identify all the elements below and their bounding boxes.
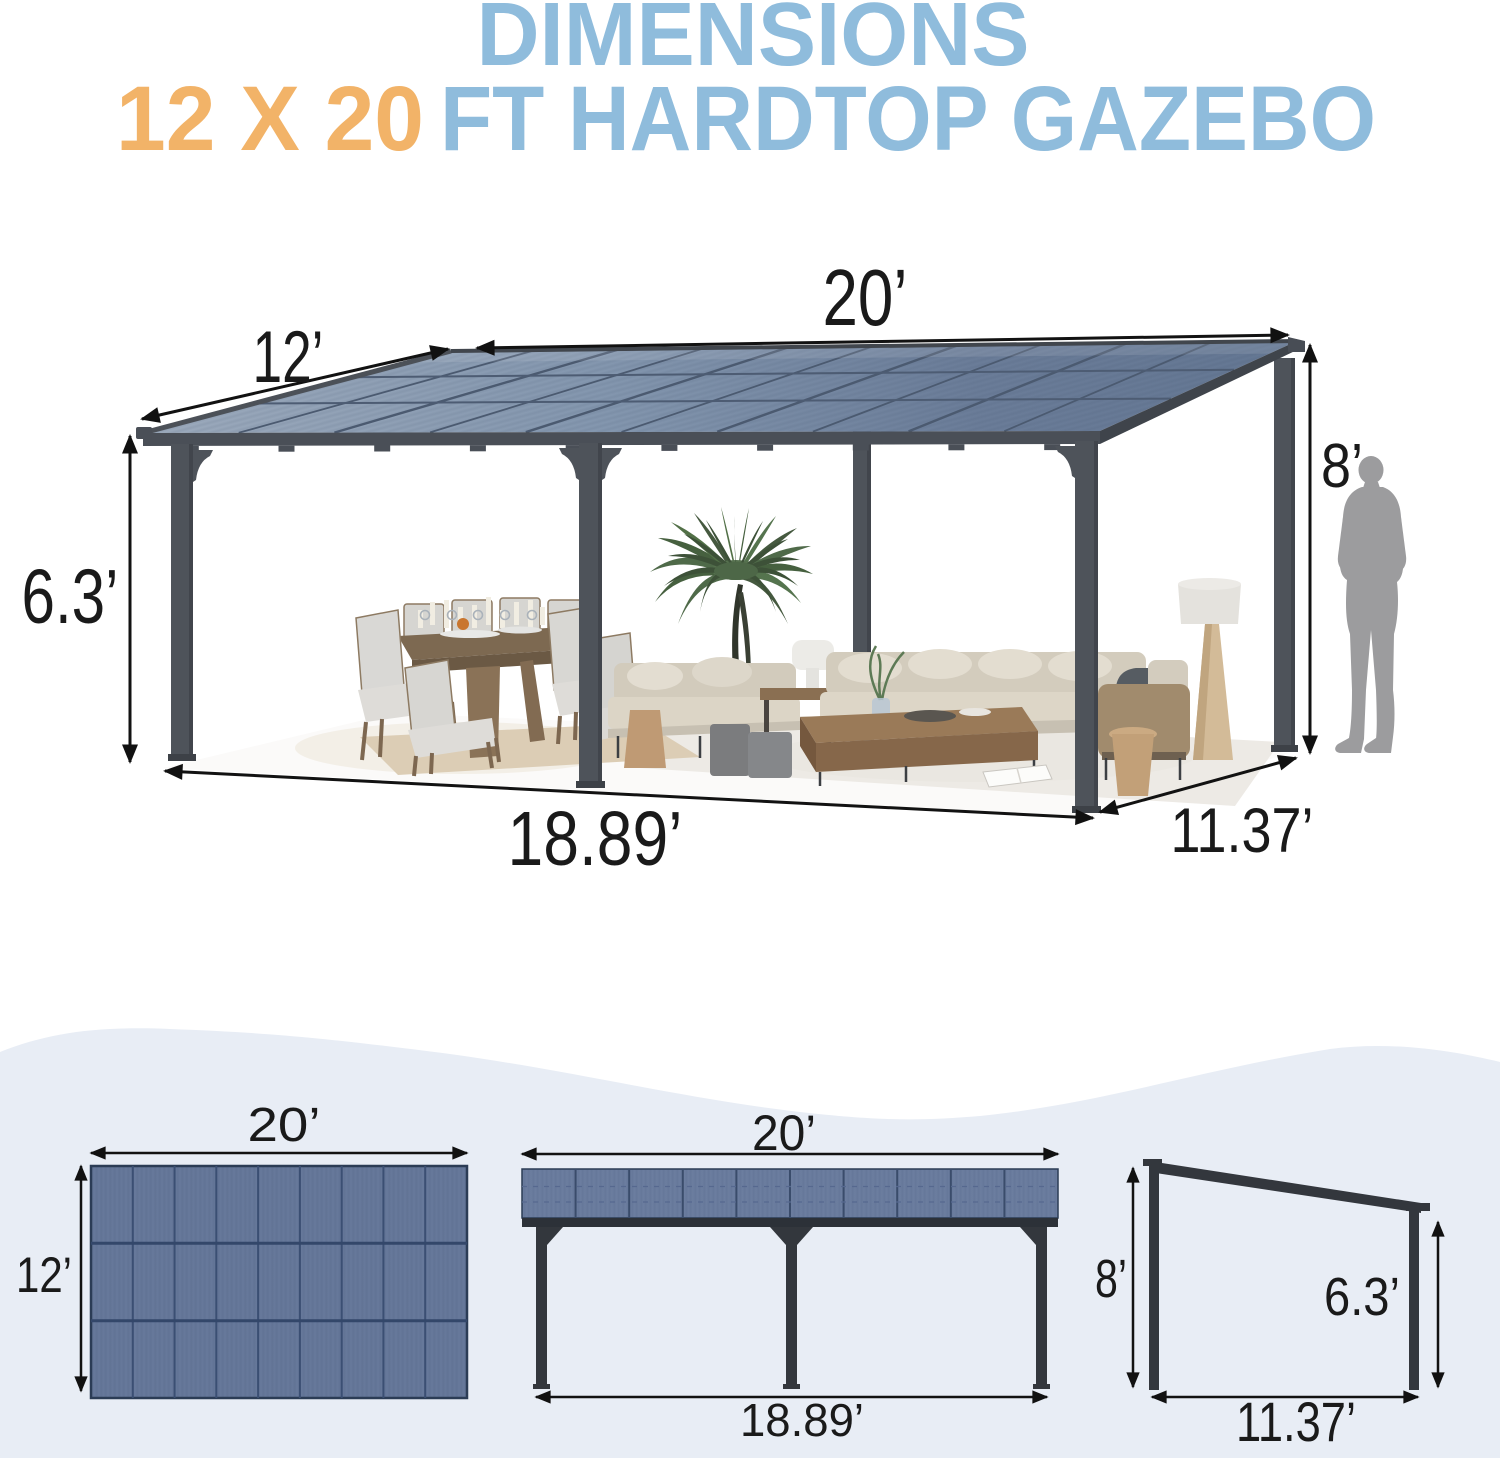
svg-text:11.37’: 11.37’ <box>1236 1390 1356 1453</box>
svg-text:11.37’: 11.37’ <box>1171 796 1314 866</box>
svg-text:20’: 20’ <box>823 253 908 342</box>
svg-text:20’: 20’ <box>248 1099 321 1152</box>
svg-text:18.89’: 18.89’ <box>740 1394 864 1446</box>
svg-text:12’: 12’ <box>16 1247 72 1303</box>
svg-text:12’: 12’ <box>253 317 324 398</box>
svg-text:20’: 20’ <box>752 1105 816 1161</box>
svg-text:6.3’: 6.3’ <box>1324 1267 1400 1327</box>
svg-text:FT HARDTOP GAZEBO: FT HARDTOP GAZEBO <box>440 68 1376 170</box>
svg-text:8’: 8’ <box>1321 432 1363 501</box>
svg-text:8’: 8’ <box>1095 1249 1127 1309</box>
svg-text:6.3’: 6.3’ <box>22 554 119 640</box>
svg-text:18.89’: 18.89’ <box>508 796 683 882</box>
svg-text:12 X 20: 12 X 20 <box>116 68 424 170</box>
